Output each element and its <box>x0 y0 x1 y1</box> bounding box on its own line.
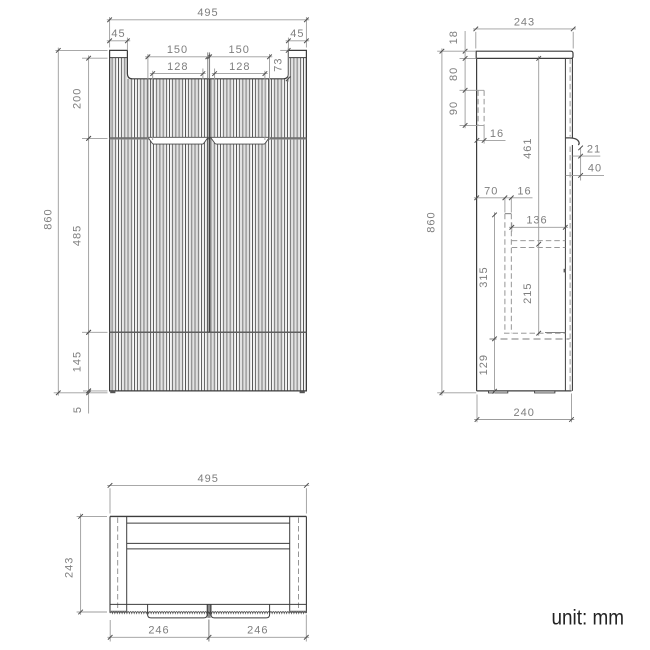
svg-text:215: 215 <box>522 283 534 304</box>
svg-text:128: 128 <box>167 61 188 73</box>
svg-text:128: 128 <box>229 61 250 73</box>
svg-text:246: 246 <box>148 625 169 637</box>
svg-text:73: 73 <box>272 57 284 71</box>
svg-text:860: 860 <box>426 211 438 232</box>
svg-text:16: 16 <box>517 185 531 197</box>
svg-text:461: 461 <box>522 138 534 159</box>
svg-text:495: 495 <box>198 473 219 485</box>
svg-text:80: 80 <box>448 67 460 81</box>
svg-text:150: 150 <box>167 44 188 56</box>
svg-text:21: 21 <box>587 144 601 156</box>
svg-text:860: 860 <box>43 208 55 229</box>
svg-text:495: 495 <box>197 7 218 19</box>
svg-text:315: 315 <box>478 266 490 287</box>
svg-text:485: 485 <box>71 225 83 246</box>
svg-text:129: 129 <box>478 354 490 375</box>
svg-text:90: 90 <box>448 101 460 115</box>
svg-text:unit: mm: unit: mm <box>552 606 625 630</box>
svg-text:246: 246 <box>247 625 268 637</box>
svg-text:16: 16 <box>490 128 504 140</box>
svg-text:45: 45 <box>290 28 304 40</box>
svg-text:150: 150 <box>229 44 250 56</box>
svg-text:243: 243 <box>64 557 76 578</box>
svg-text:5: 5 <box>72 406 84 413</box>
svg-text:45: 45 <box>111 28 125 40</box>
svg-text:70: 70 <box>484 185 498 197</box>
svg-text:40: 40 <box>588 163 602 175</box>
svg-text:243: 243 <box>514 16 535 28</box>
svg-text:18: 18 <box>448 30 460 44</box>
svg-text:136: 136 <box>526 215 547 227</box>
svg-text:200: 200 <box>71 88 83 109</box>
svg-text:240: 240 <box>514 407 535 419</box>
svg-text:145: 145 <box>71 351 83 372</box>
